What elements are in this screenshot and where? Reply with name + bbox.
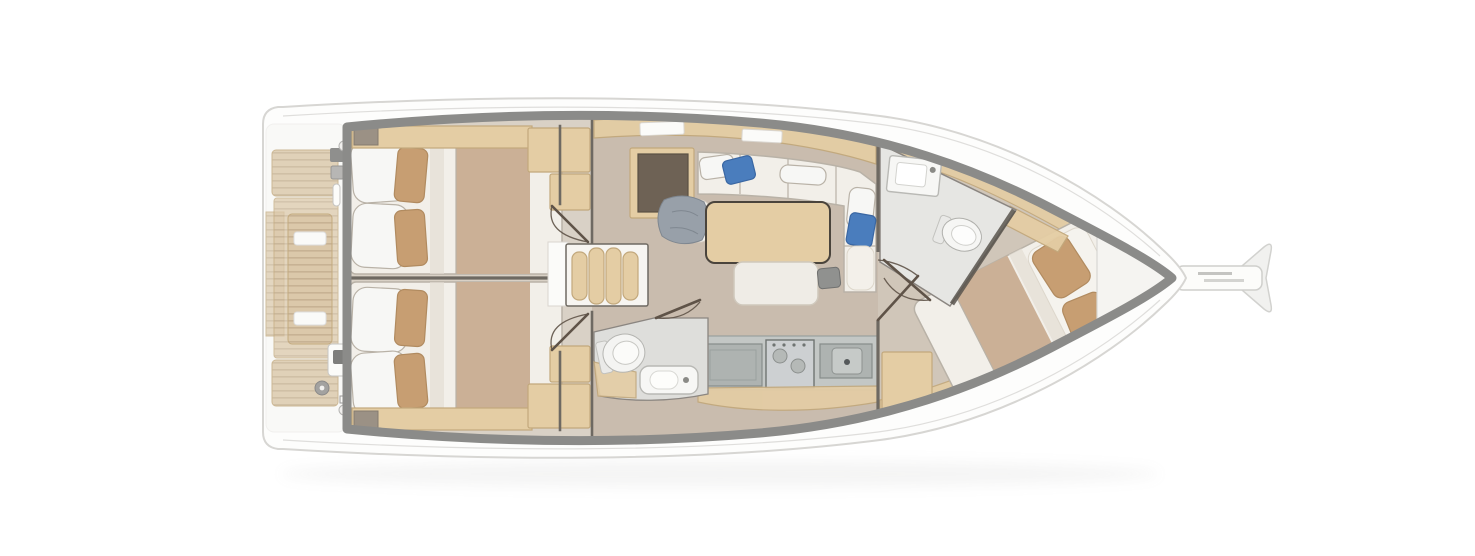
anchor-roller-slot-2 <box>1204 279 1244 282</box>
deck-hatch <box>742 129 783 143</box>
duvet-fold <box>430 134 444 274</box>
bowsprit-beam <box>1176 266 1262 290</box>
instrument-panel <box>331 166 344 179</box>
washbasin <box>895 162 927 187</box>
step <box>572 252 587 300</box>
accent-cushion <box>394 147 429 203</box>
headboard-locker <box>352 126 532 148</box>
salon-bench <box>734 262 818 305</box>
shelf-unit <box>550 346 590 382</box>
faucet <box>844 359 850 365</box>
bowsprit <box>1176 244 1271 311</box>
stove-knob <box>782 343 785 346</box>
cockpit-table-slot-2 <box>294 312 326 325</box>
headboard-locker <box>352 408 532 430</box>
bed-runner <box>456 282 530 422</box>
step <box>623 252 638 300</box>
stove <box>766 340 814 388</box>
stove-knob <box>792 343 795 346</box>
washbasin <box>650 371 678 389</box>
gray-throw <box>658 196 708 244</box>
bed-runner <box>456 134 530 274</box>
step <box>606 248 621 304</box>
step <box>589 248 604 304</box>
landing <box>548 242 568 306</box>
dining-table <box>706 202 830 263</box>
accent-cushion <box>394 209 428 267</box>
burner <box>791 359 805 373</box>
blue-pillow <box>845 212 876 248</box>
anchor-roller-slot <box>1198 272 1232 275</box>
cockpit <box>266 124 352 432</box>
stool <box>817 267 841 289</box>
duvet-fold <box>430 282 444 422</box>
accent-cushion <box>394 289 428 347</box>
galley <box>698 336 878 410</box>
companionway <box>548 242 648 306</box>
accent-cushion <box>394 353 429 409</box>
galley-cabinet-front <box>698 386 878 410</box>
burner <box>773 349 787 363</box>
interior <box>340 100 1178 460</box>
stove-knob <box>802 343 805 346</box>
shelf-unit <box>550 174 590 210</box>
winch-center <box>320 386 325 391</box>
locker-hatch <box>354 128 378 145</box>
locker-hatch <box>354 411 378 428</box>
throttle-lever <box>333 184 340 206</box>
chaise-cushion <box>847 246 874 290</box>
deck-hatch <box>640 121 684 136</box>
yacht-floor-plan <box>0 0 1475 556</box>
stove-knob <box>772 343 775 346</box>
cockpit-bench-port <box>272 150 338 196</box>
floor-plan-canvas <box>0 0 1475 556</box>
faucet <box>683 377 689 383</box>
hull-shadow <box>280 461 1160 487</box>
cockpit-table-slot <box>294 232 326 245</box>
pillow <box>779 164 826 185</box>
